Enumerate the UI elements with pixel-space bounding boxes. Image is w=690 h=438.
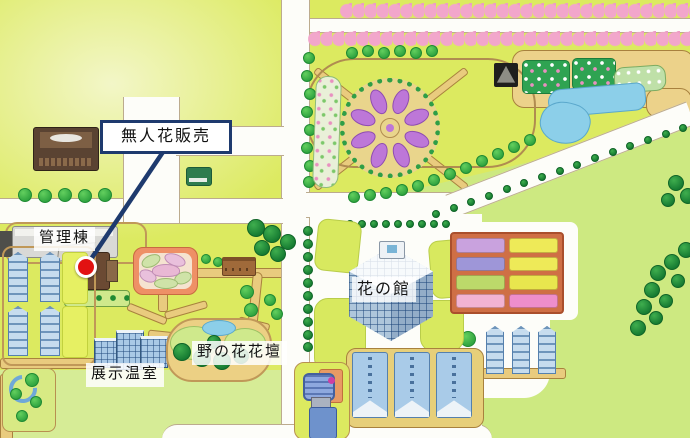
flower-hall-label: 花の館 — [352, 277, 416, 302]
tree-icon — [173, 343, 191, 361]
location-marker — [75, 256, 97, 278]
tree-icon — [30, 396, 42, 408]
tree-icon — [16, 410, 28, 422]
tree-icon — [25, 373, 39, 387]
wildflower-bed-label: 野の花花壇 — [192, 341, 287, 365]
callout-box: 無人花販売 — [100, 120, 232, 154]
tree-icon — [10, 388, 22, 400]
park-map: 無人花販売 管理棟 展示温室 野の花花壇 花の館 — [0, 0, 690, 438]
exhibition-greenhouse-label: 展示温室 — [86, 363, 164, 387]
management-building-label: 管理棟 — [34, 227, 95, 251]
